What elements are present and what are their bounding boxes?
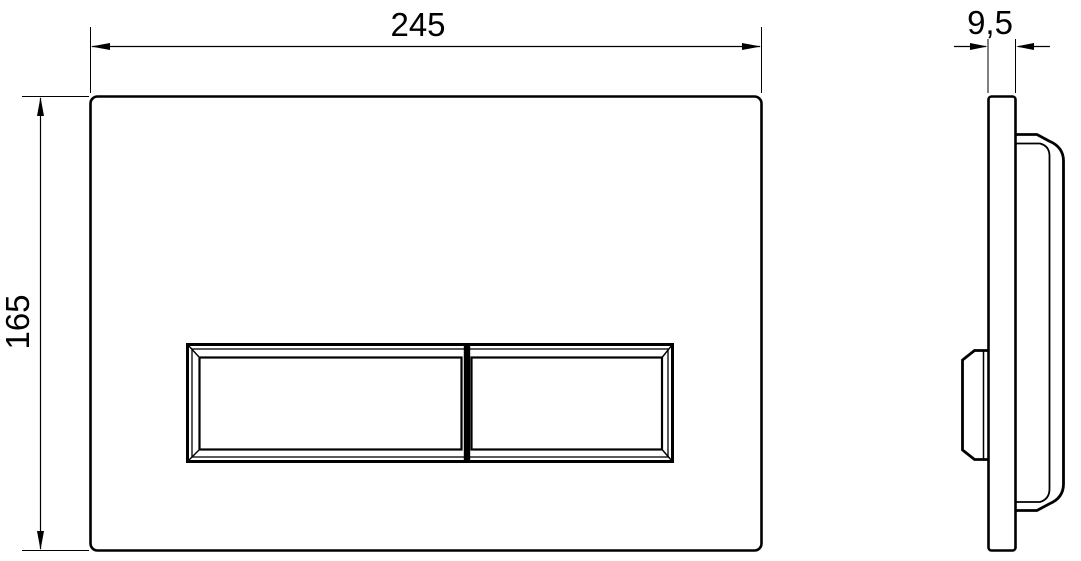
- dual-flush-button: [188, 345, 673, 462]
- button-outer-frame: [188, 345, 673, 462]
- arrowhead-right-icon: [742, 43, 761, 50]
- flush-plate-drawing: 245 165 9,5: [0, 0, 1081, 561]
- button-frame-inner-contour: [192, 349, 668, 457]
- arrowhead-inward-left-icon: [1016, 43, 1034, 50]
- arrowhead-down-icon: [37, 531, 44, 550]
- front-height-dimension: 165: [0, 97, 89, 551]
- plate-outline: [91, 97, 762, 551]
- mounting-frame-inner-profile: [1016, 144, 1050, 503]
- large-flush-button-face: [200, 358, 462, 450]
- button-divider-bar: [464, 345, 470, 461]
- front-view: [91, 97, 762, 551]
- button-bevel-corner-lines: [188, 345, 673, 462]
- side-view: [963, 97, 1064, 551]
- small-flush-button-face: [472, 358, 663, 450]
- mounting-frame-outer-profile: [1016, 135, 1064, 511]
- width-dimension-label: 245: [390, 6, 445, 43]
- arrowhead-inward-right-icon: [970, 43, 988, 50]
- plate-side-profile: [989, 97, 1016, 551]
- side-thickness-dimension: 9,5: [954, 4, 1050, 93]
- height-dimension-label: 165: [0, 294, 36, 349]
- front-width-dimension: 245: [91, 6, 762, 93]
- arrowhead-left-icon: [91, 43, 110, 50]
- technical-drawing-canvas: 245 165 9,5: [0, 0, 1081, 561]
- thickness-dimension-label: 9,5: [967, 4, 1013, 41]
- arrowhead-up-icon: [37, 97, 44, 116]
